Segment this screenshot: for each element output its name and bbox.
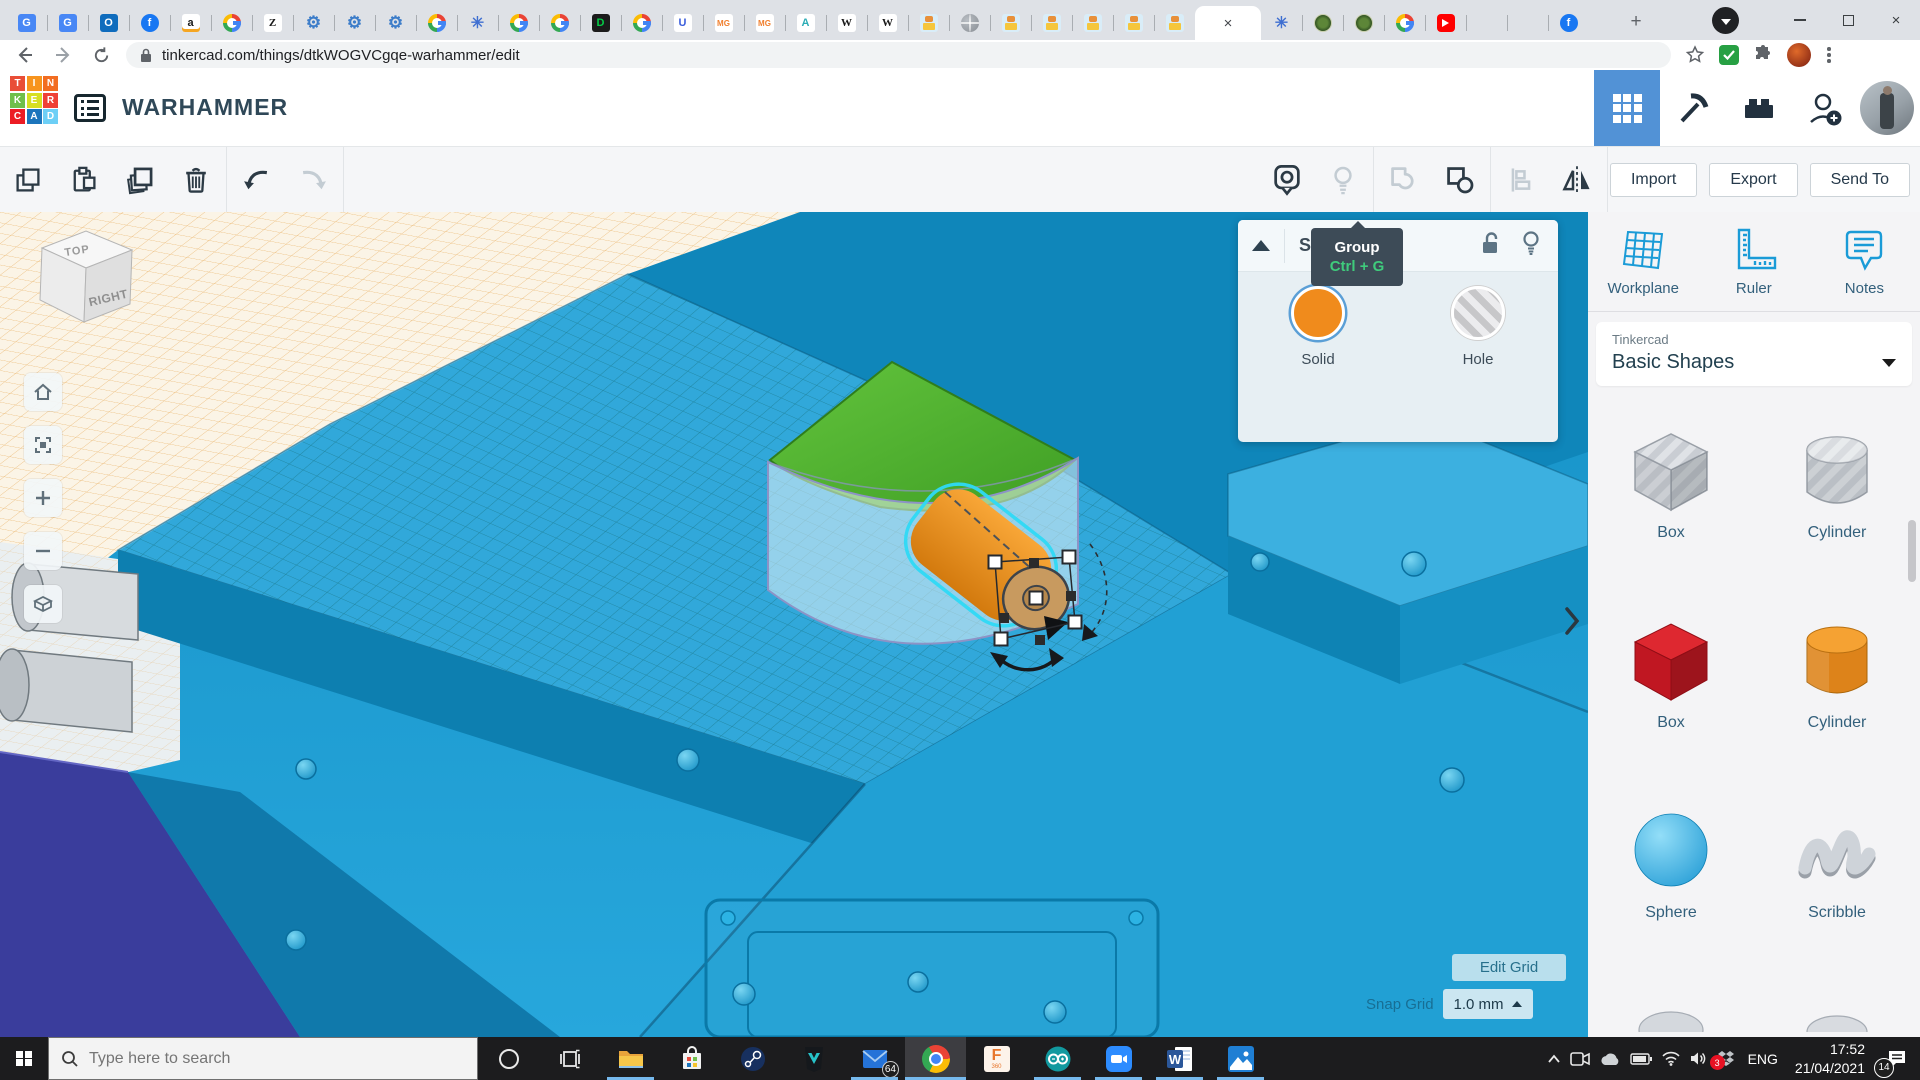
url-field[interactable]: tinkercad.com/things/dtkWOGVCgqe-warhamm…	[126, 42, 1671, 68]
3d-canvas[interactable]: TOP RIGHT	[0, 212, 1588, 1037]
tab-search-button[interactable]	[1712, 7, 1739, 34]
browser-tab-google[interactable]	[1384, 6, 1425, 40]
orange-cylinder-icon	[1789, 612, 1885, 708]
hole-cylinder-icon	[1789, 422, 1885, 518]
reload-button[interactable]	[88, 42, 114, 68]
shape-solid-box[interactable]: Box	[1588, 612, 1754, 732]
snap-grid-control: Snap Grid 1.0 mm	[1366, 989, 1533, 1019]
delete-button[interactable]	[168, 158, 224, 202]
group-icon	[1388, 164, 1420, 196]
snap-grid-label: Snap Grid	[1366, 996, 1434, 1013]
browser-tab-google[interactable]	[416, 6, 457, 40]
new-tab-button[interactable]: +	[1622, 8, 1650, 36]
browser-tab-flower[interactable]: ✳	[1261, 6, 1302, 40]
dropbox-icon[interactable]: 3	[1717, 1050, 1735, 1067]
grid-icon	[1613, 94, 1642, 123]
paste-icon	[69, 165, 99, 195]
task-view-icon	[558, 1047, 582, 1071]
scribble-icon	[1789, 802, 1885, 898]
predator-icon	[801, 1045, 827, 1073]
system-tray: 3 ENG 17:52 21/04/2021 14	[1547, 1037, 1920, 1080]
notes-tool[interactable]: Notes	[1809, 228, 1920, 297]
lego-brick-button[interactable]	[1726, 70, 1792, 146]
browser-tab-globe[interactable]	[949, 6, 990, 40]
address-bar: tinkercad.com/things/dtkWOGVCgqe-warhamm…	[0, 40, 1920, 70]
browser-tab-zalando[interactable]: Z	[252, 6, 293, 40]
close-tab-icon[interactable]: ×	[1224, 15, 1233, 32]
shape-sphere[interactable]: Sphere	[1588, 802, 1754, 922]
meet-now-icon[interactable]	[1570, 1051, 1590, 1067]
show-all-icon	[1271, 163, 1303, 197]
tinkercad-logo[interactable]: TINKERCAD	[10, 76, 58, 124]
shape-library-dropdown[interactable]: Tinkercad Basic Shapes	[1596, 322, 1912, 386]
paste-button[interactable]	[56, 158, 112, 202]
minecraft-pickaxe-button[interactable]	[1660, 70, 1726, 146]
browser-tab-robot[interactable]	[990, 6, 1031, 40]
shapes-sidebar: Workplane Ruler Notes Tinkercad Basic Sh…	[1588, 212, 1920, 1037]
duplicate-button[interactable]	[112, 158, 168, 202]
task-view-button[interactable]	[539, 1037, 600, 1080]
shape-hole-cylinder[interactable]: Cylinder	[1754, 422, 1920, 542]
sidebar-scrollbar[interactable]	[1908, 520, 1916, 582]
shape-hole-box[interactable]: Box	[1588, 422, 1754, 542]
windows-logo-icon	[16, 1051, 32, 1067]
lock-toggle-button[interactable]	[1478, 230, 1502, 261]
dashboard-grid-button[interactable]	[1594, 70, 1660, 146]
cortana-icon	[497, 1047, 521, 1071]
chevron-up-icon	[1512, 1001, 1522, 1007]
design-title[interactable]: WARHAMMER	[122, 94, 288, 121]
arduino-icon	[1044, 1045, 1072, 1073]
browser-tab-emblem[interactable]	[1302, 6, 1343, 40]
chevron-down-icon	[1721, 19, 1731, 25]
address-bar-actions	[1685, 43, 1833, 67]
steam-button[interactable]	[722, 1037, 783, 1080]
word-icon: W	[1166, 1045, 1194, 1073]
collapse-icon	[1252, 240, 1270, 251]
workplane-tool[interactable]: Workplane	[1588, 228, 1699, 297]
hole-swatch	[1451, 286, 1505, 340]
minus-icon	[32, 540, 54, 562]
view-cube[interactable]: TOP RIGHT	[18, 218, 148, 338]
word-button[interactable]: W	[1149, 1037, 1210, 1080]
perspective-icon	[32, 593, 54, 615]
search-icon	[61, 1050, 79, 1068]
tinkercad-header: TINKERCAD WARHAMMER	[0, 70, 1920, 147]
browser-tab-google-translate[interactable]: G	[6, 6, 47, 40]
svg-text:W: W	[1168, 1052, 1181, 1067]
hide-lightbulb-button[interactable]	[1315, 158, 1371, 202]
browser-tab-gear[interactable]: ⚙	[293, 6, 334, 40]
align-icon	[1506, 165, 1536, 195]
solid-swatch	[1291, 286, 1345, 340]
shape-solid-cylinder[interactable]: Cylinder	[1754, 612, 1920, 732]
ruler-icon	[1731, 228, 1777, 272]
browser-tab-facebook[interactable]: f	[1548, 6, 1589, 40]
sidebar-tools: Workplane Ruler Notes	[1588, 212, 1920, 297]
browser-tab-youtube[interactable]	[1425, 6, 1466, 40]
main-area: TOP RIGHT	[0, 212, 1920, 1037]
minimize-button[interactable]	[1776, 0, 1824, 40]
mail-button[interactable]: 64	[844, 1037, 905, 1080]
file-explorer-icon	[617, 1047, 645, 1071]
redo-icon	[297, 164, 329, 196]
search-input[interactable]	[89, 1050, 429, 1068]
copy-icon	[13, 165, 43, 195]
onedrive-icon[interactable]	[1599, 1052, 1621, 1066]
zoom-out-button[interactable]	[24, 532, 62, 570]
undo-icon	[241, 164, 273, 196]
user-avatar[interactable]	[1860, 81, 1914, 135]
export-button[interactable]: Export	[1709, 163, 1797, 197]
ungroup-icon	[1444, 164, 1476, 196]
fit-view-button[interactable]	[24, 426, 62, 464]
material-options: Solid Hole	[1238, 286, 1558, 368]
zoom-in-button[interactable]	[24, 479, 62, 517]
forward-button[interactable]	[50, 42, 76, 68]
chrome-button[interactable]	[905, 1037, 966, 1080]
language-indicator[interactable]: ENG	[1744, 1051, 1782, 1067]
bulb-icon	[1520, 230, 1542, 256]
tray-chevron-up-icon[interactable]	[1547, 1054, 1561, 1064]
unlock-icon	[1478, 230, 1502, 256]
start-button[interactable]	[0, 1037, 48, 1080]
shape-partial[interactable]	[1754, 992, 1920, 1032]
ungroup-button[interactable]	[1432, 158, 1488, 202]
browser-tab-google-translate[interactable]: G	[47, 6, 88, 40]
browser-menu-icon[interactable]	[1825, 45, 1833, 65]
solid-option[interactable]: Solid	[1238, 286, 1398, 368]
extensions-puzzle-icon[interactable]	[1753, 45, 1773, 65]
browser-tab-wikipedia[interactable]: W	[867, 6, 908, 40]
mirror-icon	[1561, 164, 1593, 196]
home-icon	[32, 381, 54, 403]
browser-tab-microsoft[interactable]	[1507, 6, 1548, 40]
plus-icon	[32, 487, 54, 509]
sphere-icon	[1623, 802, 1719, 898]
clock[interactable]: 17:52 21/04/2021	[1791, 1040, 1869, 1076]
taskbar-search[interactable]	[48, 1037, 478, 1080]
red-box-icon	[1623, 612, 1719, 708]
hole-option[interactable]: Hole	[1398, 286, 1558, 368]
import-button[interactable]: Import	[1610, 163, 1697, 197]
browser-tab-autodesk[interactable]: A	[785, 6, 826, 40]
shape-gallery: Box Cylinder	[1588, 386, 1920, 1032]
photos-icon	[1227, 1045, 1255, 1073]
group-button[interactable]	[1376, 158, 1432, 202]
fit-view-icon	[32, 434, 54, 456]
design-menu-icon[interactable]	[74, 94, 106, 122]
header-actions	[1594, 70, 1920, 146]
chrome-icon	[922, 1045, 950, 1073]
window-controls: ×	[1776, 0, 1920, 40]
chevron-right-icon	[1564, 606, 1580, 636]
volume-icon[interactable]	[1690, 1051, 1708, 1066]
browser-tab-gear[interactable]: ⚙	[375, 6, 416, 40]
workplane-icon	[1620, 228, 1666, 272]
show-all-button[interactable]	[1259, 158, 1315, 202]
wifi-icon[interactable]	[1661, 1051, 1681, 1066]
zoom-button[interactable]	[1088, 1037, 1149, 1080]
browser-tab-google[interactable]	[211, 6, 252, 40]
send-to-button[interactable]: Send To	[1810, 163, 1910, 197]
file-explorer-button[interactable]	[600, 1037, 661, 1080]
snap-grid-dropdown[interactable]: 1.0 mm	[1443, 989, 1533, 1019]
fusion-360-icon: F360	[984, 1046, 1010, 1072]
shape-scribble[interactable]: Scribble	[1754, 802, 1920, 922]
arduino-button[interactable]	[1027, 1037, 1088, 1080]
browser-tab-google[interactable]	[621, 6, 662, 40]
redo-button[interactable]	[285, 158, 341, 202]
pickaxe-icon	[1676, 91, 1710, 125]
browser-tab-gear[interactable]: ⚙	[334, 6, 375, 40]
browser-tab-google[interactable]	[539, 6, 580, 40]
back-button[interactable]	[12, 42, 38, 68]
group-tooltip: Group Ctrl + G	[1311, 228, 1403, 286]
collapse-panel-button[interactable]	[1238, 240, 1284, 251]
maximize-button[interactable]	[1824, 0, 1872, 40]
edit-toolbar: Import Export Send To	[0, 147, 1920, 212]
battery-icon[interactable]	[1630, 1053, 1652, 1065]
browser-tab-mg[interactable]: MG	[703, 6, 744, 40]
zoom-icon	[1105, 1045, 1133, 1073]
browser-tab-robot[interactable]	[1113, 6, 1154, 40]
lightbulb-icon	[1328, 164, 1358, 196]
canvas-tools	[24, 373, 62, 638]
browser-tab-google[interactable]	[498, 6, 539, 40]
bookmark-star-icon[interactable]	[1685, 45, 1705, 65]
brick-icon	[1742, 93, 1776, 123]
predator-button[interactable]	[783, 1037, 844, 1080]
browser-tab-amazon[interactable]: a	[170, 6, 211, 40]
align-button[interactable]	[1493, 158, 1549, 202]
browser-tab-outlook[interactable]: O	[88, 6, 129, 40]
browser-tab-wikipedia[interactable]: W	[826, 6, 867, 40]
duplicate-icon	[124, 164, 156, 196]
windows-taskbar: 64 F360 W	[0, 1037, 1920, 1080]
browser-tab-emblem[interactable]	[1343, 6, 1384, 40]
app-root: GGOfaZ⚙⚙⚙✳DUMGMGAWW×✳f + × tinkercad.com…	[0, 0, 1920, 1080]
browser-tab-tinkercad[interactable]	[1466, 6, 1507, 40]
browser-tab-mg[interactable]: MG	[744, 6, 785, 40]
browser-tab-deviantart[interactable]: D	[580, 6, 621, 40]
browser-tab-facebook[interactable]: f	[129, 6, 170, 40]
trash-icon	[181, 165, 211, 195]
browser-tab-robot[interactable]	[1154, 6, 1195, 40]
photos-button[interactable]	[1210, 1037, 1271, 1080]
visibility-toggle-button[interactable]	[1520, 230, 1542, 261]
toolbar-right: Import Export Send To	[1259, 147, 1920, 212]
steam-icon	[739, 1045, 767, 1073]
url-text: tinkercad.com/things/dtkWOGVCgqe-warhamm…	[162, 47, 520, 64]
mail-badge: 64	[882, 1061, 899, 1078]
date: 21/04/2021	[1795, 1059, 1865, 1077]
collapse-sidebar-handle[interactable]	[1560, 602, 1584, 640]
ruler-tool[interactable]: Ruler	[1699, 228, 1810, 297]
extension-check-icon[interactable]	[1719, 45, 1739, 65]
dropbox-badge: 3	[1710, 1055, 1725, 1070]
home-view-button[interactable]	[24, 373, 62, 411]
store-icon	[680, 1046, 704, 1072]
cortana-button[interactable]	[478, 1037, 539, 1080]
tab-strip: GGOfaZ⚙⚙⚙✳DUMGMGAWW×✳f	[6, 0, 1589, 40]
undo-button[interactable]	[229, 158, 285, 202]
notification-center-button[interactable]: 14	[1886, 1048, 1908, 1070]
time: 17:52	[1795, 1040, 1865, 1058]
invite-user-icon	[1806, 89, 1844, 127]
browser-tab-udemy[interactable]: U	[662, 6, 703, 40]
perspective-button[interactable]	[24, 585, 62, 623]
edit-grid-button[interactable]: Edit Grid	[1452, 954, 1566, 981]
fusion-360-button[interactable]: F360	[966, 1037, 1027, 1080]
chevron-down-icon	[1882, 359, 1896, 367]
browser-tab-flower[interactable]: ✳	[457, 6, 498, 40]
lock-icon	[140, 48, 152, 63]
notes-icon	[1841, 228, 1887, 272]
microsoft-store-button[interactable]	[661, 1037, 722, 1080]
close-button[interactable]: ×	[1872, 0, 1920, 40]
mirror-button[interactable]	[1549, 158, 1605, 202]
browser-tab-robot[interactable]	[908, 6, 949, 40]
invite-user-button[interactable]	[1792, 70, 1858, 146]
copy-button[interactable]	[0, 158, 56, 202]
hole-box-icon	[1623, 422, 1719, 518]
notification-badge: 14	[1874, 1058, 1894, 1078]
browser-tab-robot[interactable]	[1072, 6, 1113, 40]
active-tab[interactable]: ×	[1195, 6, 1261, 40]
browser-profile-avatar[interactable]	[1787, 43, 1811, 67]
shape-partial[interactable]	[1588, 992, 1754, 1032]
browser-tab-bar: GGOfaZ⚙⚙⚙✳DUMGMGAWW×✳f + ×	[0, 0, 1920, 40]
browser-tab-robot[interactable]	[1031, 6, 1072, 40]
